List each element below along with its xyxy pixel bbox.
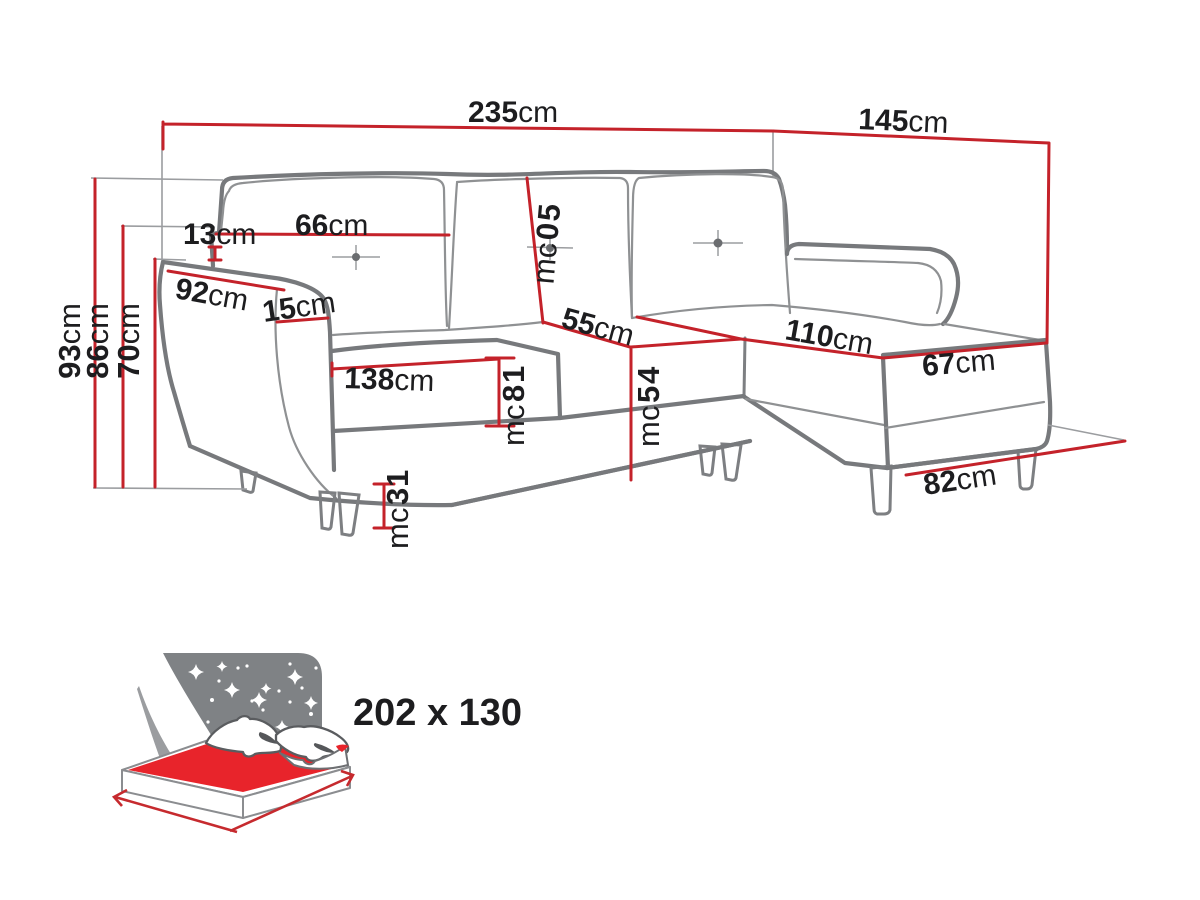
svg-text:13cm: 13cm xyxy=(183,218,256,251)
svg-text:66cm: 66cm xyxy=(295,209,368,242)
svg-text:18cm: 18cm xyxy=(496,366,531,446)
svg-text:13cm: 13cm xyxy=(380,470,415,549)
svg-text:86cm: 86cm xyxy=(80,303,115,379)
svg-text:67cm: 67cm xyxy=(921,344,997,383)
svg-text:45cm: 45cm xyxy=(631,366,666,447)
svg-text:50cm: 50cm xyxy=(525,202,567,285)
svg-text:138cm: 138cm xyxy=(344,362,435,398)
svg-text:202 x 130: 202 x 130 xyxy=(353,692,522,734)
svg-text:70cm: 70cm xyxy=(111,303,146,379)
svg-text:235cm: 235cm xyxy=(468,96,558,129)
svg-text:145cm: 145cm xyxy=(858,103,949,140)
